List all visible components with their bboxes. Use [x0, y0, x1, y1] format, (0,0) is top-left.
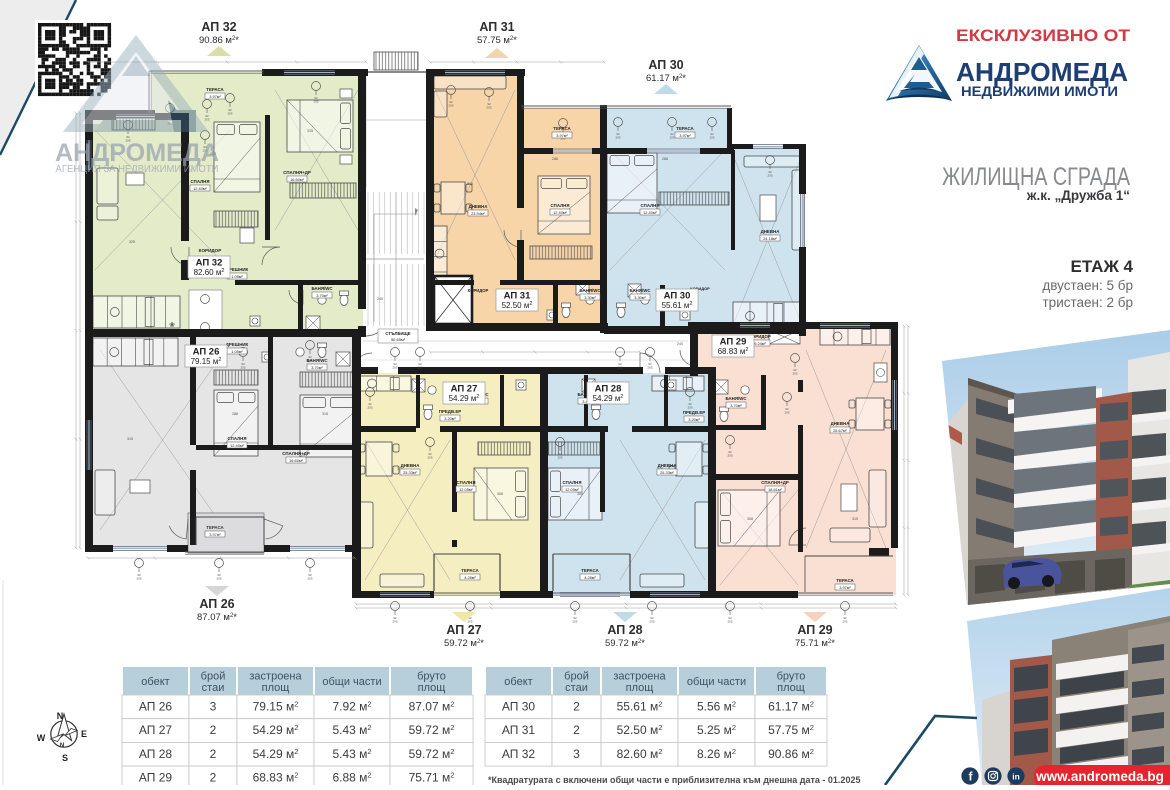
svg-text:АП 26: АП 26	[199, 597, 234, 611]
svg-text:АП 28: АП 28	[607, 623, 642, 637]
svg-text:БАНЯ/WC: БАНЯ/WC	[311, 286, 333, 291]
svg-text:82.60 м2: 82.60 м2	[194, 268, 225, 277]
svg-text:площ: площ	[418, 682, 446, 694]
svg-text:24.18м²: 24.18м²	[763, 236, 777, 241]
svg-text:288: 288	[552, 157, 558, 161]
svg-text:79.15 м2: 79.15 м2	[253, 700, 299, 714]
svg-text:ТЕРАСА: ТЕРАСА	[206, 525, 224, 530]
svg-text:205: 205	[227, 112, 232, 116]
svg-text:ДНЕВНА: ДНЕВНА	[401, 463, 421, 468]
svg-text:12.40м²: 12.40м²	[230, 443, 244, 448]
svg-text:23.94м²: 23.94м²	[471, 211, 485, 216]
svg-text:12.40м²: 12.40м²	[193, 186, 207, 191]
svg-text:59.72 м2: 59.72 м2	[409, 723, 455, 737]
svg-text:АП 31: АП 31	[502, 723, 536, 737]
svg-text:КОРИДОР: КОРИДОР	[468, 288, 489, 293]
svg-text:205: 205	[216, 577, 221, 581]
svg-text:ПРЕДВ.ЕР: ПРЕДВ.ЕР	[683, 410, 705, 415]
svg-text:2: 2	[573, 723, 580, 737]
svg-text:АГЕНЦИЯ ЗА НЕДВИЖИМИ ИМОТИ: АГЕНЦИЯ ЗА НЕДВИЖИМИ ИМОТИ	[56, 164, 219, 175]
svg-text:25.33м²: 25.33м²	[660, 470, 674, 475]
svg-text:ДНЕВНА: ДНЕВНА	[761, 229, 781, 234]
svg-text:НЕДВИЖИМИ ИМОТИ: НЕДВИЖИМИ ИМОТИ	[961, 83, 1118, 99]
svg-text:308: 308	[577, 492, 583, 496]
svg-text:315: 315	[467, 182, 473, 186]
svg-text:АП 29: АП 29	[720, 337, 747, 348]
svg-text:ЕКСКЛУЗИВНО ОТ: ЕКСКЛУЗИВНО ОТ	[956, 27, 1130, 45]
svg-text:АНДРОМЕДА: АНДРОМЕДА	[55, 139, 219, 167]
svg-text:3.20м²: 3.20м²	[688, 417, 700, 422]
svg-text:54.29 м2: 54.29 м2	[253, 747, 299, 761]
svg-text:205: 205	[557, 456, 562, 460]
svg-text:обект: обект	[141, 676, 169, 688]
svg-text:АП 32: АП 32	[502, 747, 536, 761]
svg-text:СПАЛНЯ: СПАЛНЯ	[457, 480, 476, 485]
svg-text:205: 205	[727, 620, 732, 624]
svg-text:325: 325	[129, 240, 135, 244]
svg-text:205: 205	[313, 100, 318, 104]
svg-text:61.17 м2*: 61.17 м2*	[646, 73, 686, 84]
svg-text:СПАЛНЯ+ДР: СПАЛНЯ+ДР	[761, 480, 789, 485]
svg-text:2: 2	[573, 700, 580, 714]
svg-text:www.andromeda.bg: www.andromeda.bg	[1035, 769, 1164, 784]
svg-text:12.40м²: 12.40м²	[553, 210, 567, 215]
svg-text:ж.к. „Дружба 1“: ж.к. „Дружба 1“	[1026, 188, 1130, 203]
svg-text:АП 28: АП 28	[595, 384, 622, 395]
svg-text:БАНЯ/WC: БАНЯ/WC	[306, 358, 328, 363]
svg-text:205: 205	[204, 118, 209, 122]
svg-text:205: 205	[136, 577, 141, 581]
svg-text:АП 27: АП 27	[446, 623, 481, 637]
svg-text:3.97м²: 3.97м²	[209, 94, 221, 99]
svg-text:205: 205	[792, 372, 797, 376]
svg-text:СПАЛНЯ+ДР: СПАЛНЯ+ДР	[282, 451, 310, 456]
svg-text:205: 205	[842, 620, 847, 624]
svg-text:59.72 м2: 59.72 м2	[409, 747, 455, 761]
svg-text:75.71 м2: 75.71 м2	[409, 771, 455, 785]
svg-text:СПАЛНЯ: СПАЛНЯ	[551, 203, 570, 208]
svg-text:застроена: застроена	[613, 671, 666, 683]
svg-text:W: W	[37, 733, 46, 743]
svg-text:АП 31: АП 31	[504, 291, 531, 302]
svg-text:205: 205	[392, 366, 397, 370]
svg-text:240: 240	[377, 297, 383, 301]
svg-text:205: 205	[784, 411, 789, 415]
svg-text:308: 308	[497, 492, 503, 496]
svg-text:КОРИДОР: КОРИДОР	[199, 248, 222, 253]
svg-text:315: 315	[307, 129, 313, 133]
svg-text:205: 205	[767, 174, 772, 178]
svg-text:5.56 м2: 5.56 м2	[697, 700, 736, 714]
svg-text:АП 30: АП 30	[502, 700, 536, 714]
svg-text:25.33м²: 25.33м²	[403, 470, 417, 475]
svg-text:АП 27: АП 27	[139, 723, 173, 737]
svg-text:двустаен: 5 бр: двустаен: 5 бр	[1042, 278, 1133, 293]
svg-text:205: 205	[687, 406, 692, 410]
svg-text:2: 2	[210, 723, 217, 737]
svg-text:6.88 м2: 6.88 м2	[332, 771, 371, 785]
svg-text:E: E	[81, 729, 87, 739]
svg-text:БАНЯ/WC: БАНЯ/WC	[629, 288, 651, 293]
svg-text:ТЕРАСА: ТЕРАСА	[581, 568, 599, 573]
svg-text:обект: обект	[504, 676, 532, 688]
svg-text:205: 205	[647, 366, 652, 370]
svg-text:52.50 м2: 52.50 м2	[617, 723, 663, 737]
svg-text:АП 30: АП 30	[664, 291, 691, 302]
svg-text:87.07 м2*: 87.07 м2*	[197, 612, 237, 623]
svg-text:57.75 м2*: 57.75 м2*	[477, 35, 517, 46]
svg-text:ЖИЛИЩНА СГРАДА: ЖИЛИЩНА СГРАДА	[942, 163, 1130, 191]
svg-text:205: 205	[669, 136, 674, 140]
svg-text:205: 205	[367, 406, 372, 410]
svg-text:брой: брой	[564, 671, 589, 683]
svg-text:СПАЛНЯ: СПАЛНЯ	[563, 480, 582, 485]
svg-text:АП 32: АП 32	[201, 20, 236, 34]
svg-text:ДНЕВНА: ДНЕВНА	[831, 421, 851, 426]
svg-text:брой: брой	[201, 671, 226, 683]
svg-text:площ: площ	[777, 682, 805, 694]
svg-text:3.97м²: 3.97м²	[209, 532, 221, 537]
svg-text:АП 29: АП 29	[139, 771, 173, 785]
svg-text:1.05м²: 1.05м²	[231, 349, 243, 354]
svg-text:8.26 м2: 8.26 м2	[697, 747, 736, 761]
svg-text:3.20м²: 3.20м²	[444, 416, 456, 421]
svg-text:12.40м²: 12.40м²	[643, 210, 657, 215]
svg-text:205: 205	[307, 577, 312, 581]
svg-text:205: 205	[649, 620, 654, 624]
svg-text:N: N	[57, 711, 64, 721]
svg-text:3.70м²: 3.70м²	[311, 365, 323, 370]
svg-text:205: 205	[617, 366, 622, 370]
svg-text:2: 2	[210, 747, 217, 761]
svg-text:55.61 м2: 55.61 м2	[662, 301, 693, 310]
svg-text:205: 205	[240, 366, 245, 370]
svg-text:in: in	[1012, 772, 1020, 782]
svg-text:АП 32: АП 32	[196, 258, 223, 269]
svg-text:18.61м²: 18.61м²	[768, 487, 782, 492]
svg-text:3.30м²: 3.30м²	[634, 295, 646, 300]
svg-text:54.29 м2: 54.29 м2	[593, 394, 624, 403]
svg-text:тристаен: 2 бр: тристаен: 2 бр	[1043, 295, 1134, 310]
svg-text:*Квадратурата с включени общи: *Квадратурата с включени общи части е пр…	[488, 775, 860, 785]
svg-text:АП 30: АП 30	[648, 58, 683, 72]
svg-text:СТЪЛБИЩЕ: СТЪЛБИЩЕ	[385, 331, 410, 336]
svg-text:315: 315	[127, 437, 133, 441]
svg-text:СПАЛНЯ: СПАЛНЯ	[641, 203, 660, 208]
svg-text:ТЕРАСА: ТЕРАСА	[553, 126, 571, 131]
svg-text:СПАЛНЯ: СПАЛНЯ	[191, 179, 210, 184]
svg-text:315: 315	[322, 412, 328, 416]
svg-text:3.97м²: 3.97м²	[556, 133, 568, 138]
svg-text:68.83 м2: 68.83 м2	[718, 347, 749, 356]
svg-text:25.67м²: 25.67м²	[833, 428, 847, 433]
svg-text:3.97м²: 3.97м²	[679, 133, 691, 138]
svg-text:площ: площ	[262, 682, 290, 694]
svg-text:АП 26: АП 26	[139, 700, 173, 714]
svg-text:ТЕРАСА: ТЕРАСА	[461, 568, 479, 573]
svg-text:68.83 м2: 68.83 м2	[253, 771, 299, 785]
svg-text:ПРЕДВ.ЕР: ПРЕДВ.ЕР	[439, 409, 461, 414]
svg-text:87.07 м2: 87.07 м2	[409, 700, 455, 714]
svg-text:БАНЯ/WC: БАНЯ/WC	[579, 288, 601, 293]
svg-text:S: S	[62, 753, 68, 763]
svg-text:205: 205	[572, 620, 577, 624]
svg-text:АП 29: АП 29	[797, 623, 832, 637]
svg-text:61.17 м2: 61.17 м2	[768, 700, 814, 714]
svg-text:ТЕРАСА: ТЕРАСА	[676, 126, 694, 131]
svg-text:205: 205	[392, 620, 397, 624]
svg-text:205: 205	[709, 136, 714, 140]
svg-text:3.70м²: 3.70м²	[316, 293, 328, 298]
svg-text:АП 27: АП 27	[451, 384, 478, 395]
svg-text:240: 240	[677, 342, 683, 346]
svg-text:ТЕРАСА: ТЕРАСА	[206, 87, 224, 92]
svg-text:N: N	[60, 743, 64, 749]
svg-text:3.30м²: 3.30м²	[584, 295, 596, 300]
svg-text:57.75 м2: 57.75 м2	[768, 723, 814, 737]
svg-text:АП 31: АП 31	[479, 20, 514, 34]
svg-text:59.72 м2*: 59.72 м2*	[444, 638, 484, 649]
svg-text:52.50 м2: 52.50 м2	[502, 301, 533, 310]
svg-text:205: 205	[615, 136, 620, 140]
svg-text:55.61 м2: 55.61 м2	[617, 700, 663, 714]
svg-text:308: 308	[747, 517, 753, 521]
svg-text:75.71 м2*: 75.71 м2*	[795, 638, 835, 649]
svg-text:7.92 м2: 7.92 м2	[332, 700, 371, 714]
svg-text:205: 205	[727, 454, 732, 458]
svg-text:2: 2	[210, 771, 217, 785]
svg-text:79.15 м2: 79.15 м2	[191, 357, 222, 366]
svg-text:СПАЛНЯ: СПАЛНЯ	[228, 436, 247, 441]
svg-text:3.97м²: 3.97м²	[839, 585, 851, 590]
svg-text:общи части: общи части	[687, 676, 746, 688]
svg-text:ЕТАЖ 4: ЕТАЖ 4	[1071, 257, 1134, 276]
svg-text:стаи: стаи	[565, 682, 588, 694]
svg-text:площ: площ	[626, 682, 654, 694]
svg-text:3: 3	[210, 700, 217, 714]
svg-text:ДРЕШНИК: ДРЕШНИК	[226, 342, 249, 347]
svg-text:16.60м²: 16.60м²	[290, 177, 304, 182]
svg-text:4.28м²: 4.28м²	[584, 575, 596, 580]
svg-text:12.05м²: 12.05м²	[459, 487, 473, 492]
svg-text:5.43 м2: 5.43 м2	[332, 747, 371, 761]
svg-text:стаи: стаи	[202, 682, 225, 694]
svg-text:1.05м²: 1.05м²	[231, 274, 243, 279]
svg-text:16.60м²: 16.60м²	[289, 458, 303, 463]
svg-text:54.29 м2: 54.29 м2	[449, 394, 480, 403]
svg-text:205: 205	[417, 366, 422, 370]
svg-text:205: 205	[448, 104, 453, 108]
svg-text:90.86 м2*: 90.86 м2*	[199, 35, 239, 46]
svg-text:50.65м²: 50.65м²	[391, 337, 406, 342]
svg-text:общи части: общи части	[322, 676, 381, 688]
svg-text:5.25 м2: 5.25 м2	[697, 723, 736, 737]
svg-text:бруто: бруто	[777, 671, 806, 683]
svg-text:205: 205	[427, 456, 432, 460]
svg-text:288: 288	[232, 412, 238, 416]
svg-text:9.24м²: 9.24м²	[754, 341, 766, 346]
svg-text:СПАЛНЯ+ДР: СПАЛНЯ+ДР	[283, 170, 311, 175]
svg-text:315: 315	[852, 517, 858, 521]
svg-text:4.28м²: 4.28м²	[464, 575, 476, 580]
svg-text:ДНЕВНА: ДНЕВНА	[658, 463, 678, 468]
svg-text:застроена: застроена	[249, 671, 302, 683]
svg-text:205: 205	[486, 106, 491, 110]
svg-text:54.29 м2: 54.29 м2	[253, 723, 299, 737]
svg-text:288: 288	[662, 157, 668, 161]
svg-text:82.60 м2: 82.60 м2	[617, 747, 663, 761]
svg-text:АП 26: АП 26	[193, 347, 220, 358]
svg-text:❀: ❀	[169, 322, 175, 329]
svg-text:ТЕРАСА: ТЕРАСА	[836, 578, 854, 583]
svg-text:3.70м²: 3.70м²	[730, 403, 742, 408]
svg-text:БАНЯ/WC: БАНЯ/WC	[725, 396, 747, 401]
svg-text:90.86 м2: 90.86 м2	[768, 747, 814, 761]
svg-text:АП 28: АП 28	[139, 747, 173, 761]
svg-text:59.72 м2*: 59.72 м2*	[605, 638, 645, 649]
svg-text:3: 3	[573, 747, 580, 761]
svg-text:5.43 м2: 5.43 м2	[332, 723, 371, 737]
svg-text:бруто: бруто	[417, 671, 446, 683]
svg-text:ДНЕВНА: ДНЕВНА	[469, 204, 489, 209]
svg-text:12.05м²: 12.05м²	[565, 487, 579, 492]
